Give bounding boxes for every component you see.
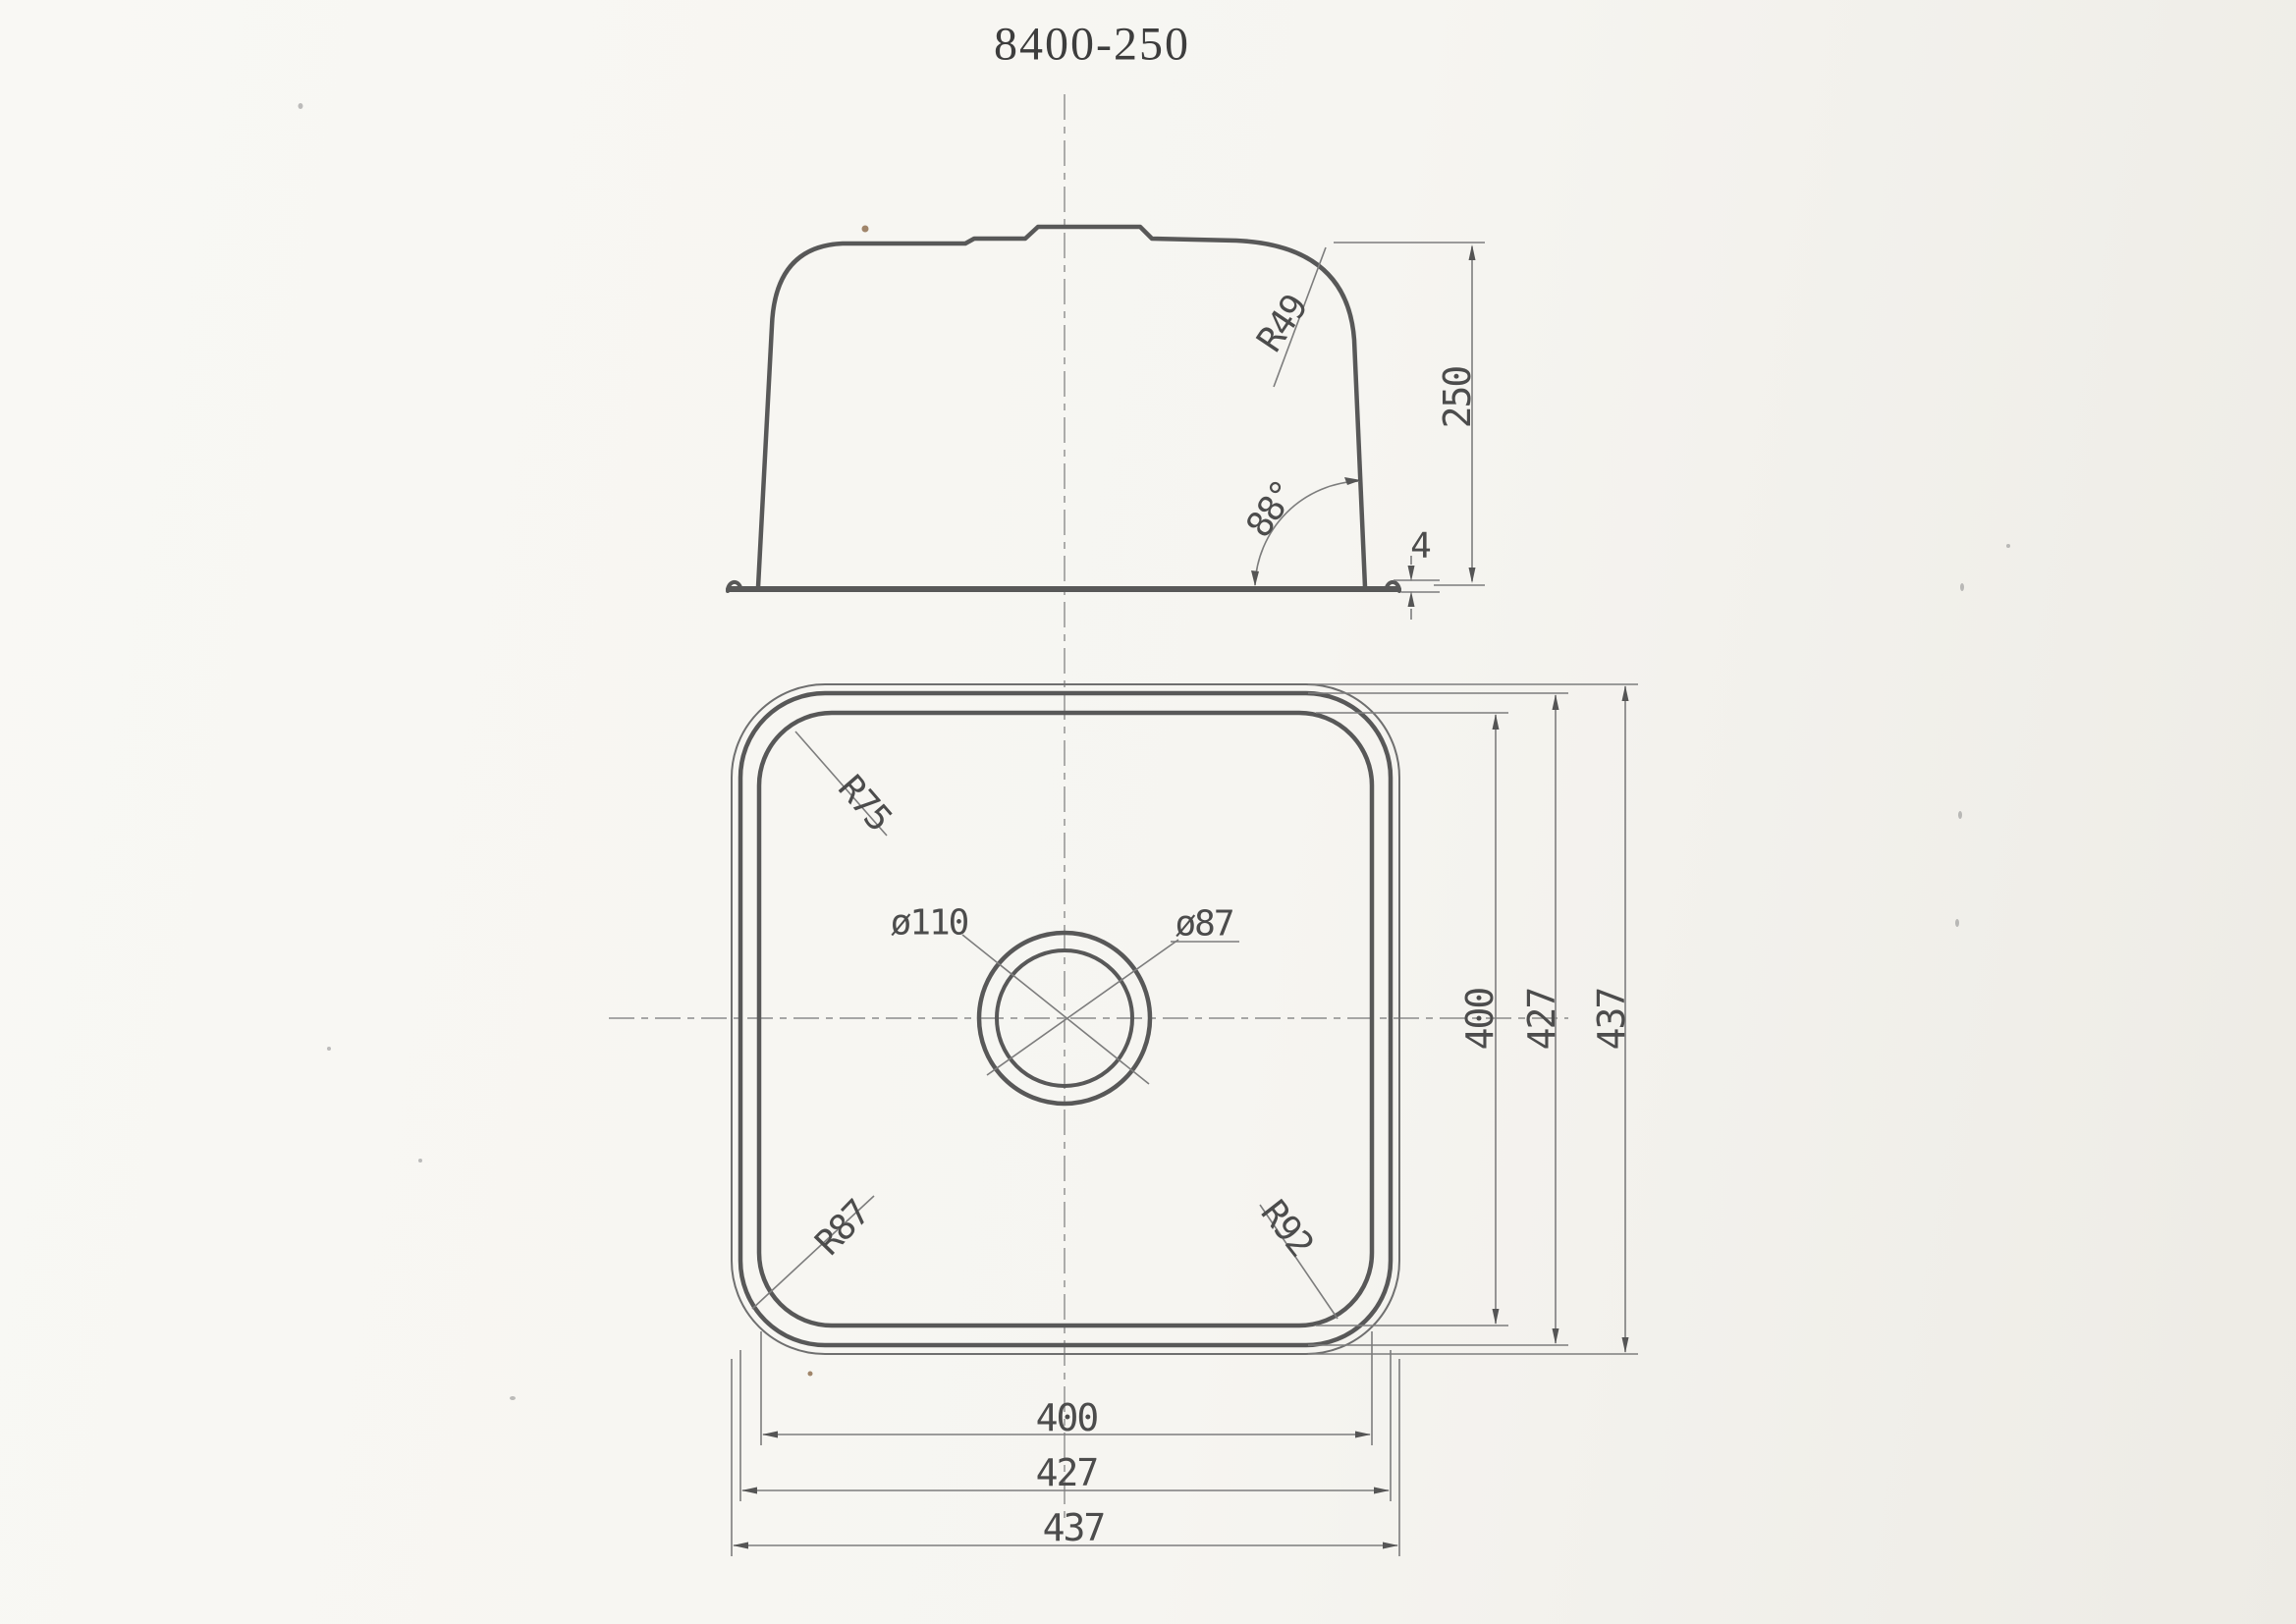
scan-speck [510, 1396, 516, 1400]
scan-speck [418, 1159, 422, 1163]
scan-speck [1958, 811, 1962, 819]
arrowhead [1469, 244, 1476, 260]
arrowhead [1622, 1337, 1629, 1353]
dim-corner-radii: R75 R87 R92 [752, 731, 1338, 1319]
dim-depth-rim-inner-427: 427 [1308, 693, 1568, 1345]
arrowhead [741, 1488, 757, 1494]
scan-speck [327, 1047, 331, 1051]
arrowhead [1622, 685, 1629, 701]
arrowhead [1383, 1543, 1398, 1549]
scan-speck [862, 226, 869, 233]
drawing-sheet: 8400-250 R49 88° 25 [0, 0, 2296, 1624]
dim-rim-thickness: 4 [1394, 526, 1440, 621]
corner-radius-bottom-right-label: R92 [1253, 1193, 1321, 1264]
dim-width-bowl-400: 400 [761, 1331, 1372, 1445]
depth-rim-outer-label: 437 [1590, 989, 1633, 1051]
arrowhead [1553, 1328, 1559, 1344]
arrowhead [733, 1543, 748, 1549]
width-dimensions: 400 427 437 [732, 1331, 1399, 1556]
dim-depth-bowl-400: 400 [1316, 713, 1508, 1326]
scan-speck [2006, 544, 2010, 548]
side-view: R49 88° 250 4 [728, 227, 1485, 620]
scan-speck [1960, 583, 1964, 591]
scan-specks [299, 103, 2011, 1400]
drain-outer-diameter-label: ø110 [891, 903, 968, 944]
arrowhead [1493, 714, 1500, 730]
dim-wall-angle: 88° [1238, 474, 1361, 586]
rim-thickness-label: 4 [1410, 526, 1430, 567]
depth-label: 250 [1436, 367, 1479, 429]
arrowhead [1251, 570, 1259, 586]
scan-speck [299, 103, 303, 109]
arrowhead [1493, 1309, 1500, 1325]
depth-dimensions: 400 427 437 [1308, 684, 1638, 1354]
arrowhead [1374, 1488, 1390, 1494]
width-rim-outer-label: 437 [1043, 1506, 1105, 1549]
arrowhead [1355, 1432, 1371, 1438]
width-bowl-label: 400 [1036, 1396, 1098, 1439]
width-rim-inner-label: 427 [1036, 1451, 1098, 1494]
corner-radius-bottom-left-label: R87 [808, 1194, 877, 1264]
arrowhead [1469, 568, 1476, 583]
depth-bowl-label: 400 [1458, 989, 1502, 1051]
technical-drawing: 8400-250 R49 88° 25 [0, 0, 2296, 1624]
scan-speck [808, 1372, 813, 1377]
arrowhead [1408, 566, 1415, 581]
scan-speck [1955, 919, 1959, 927]
drawing-title: 8400-250 [994, 19, 1190, 71]
plan-view: ø110 ø87 R75 R87 R92 400 [732, 684, 1638, 1556]
depth-rim-inner-label: 427 [1520, 989, 1563, 1051]
centerlines [609, 94, 1568, 1524]
wall-angle-label: 88° [1238, 474, 1304, 545]
arrowhead [1408, 591, 1415, 607]
arrowhead [762, 1432, 778, 1438]
corner-radius-top-left-label: R75 [830, 768, 899, 838]
dim-corner-radius: R49 [1249, 247, 1326, 387]
drain-inner-diameter-label: ø87 [1175, 904, 1232, 945]
arrowhead [1553, 694, 1559, 710]
